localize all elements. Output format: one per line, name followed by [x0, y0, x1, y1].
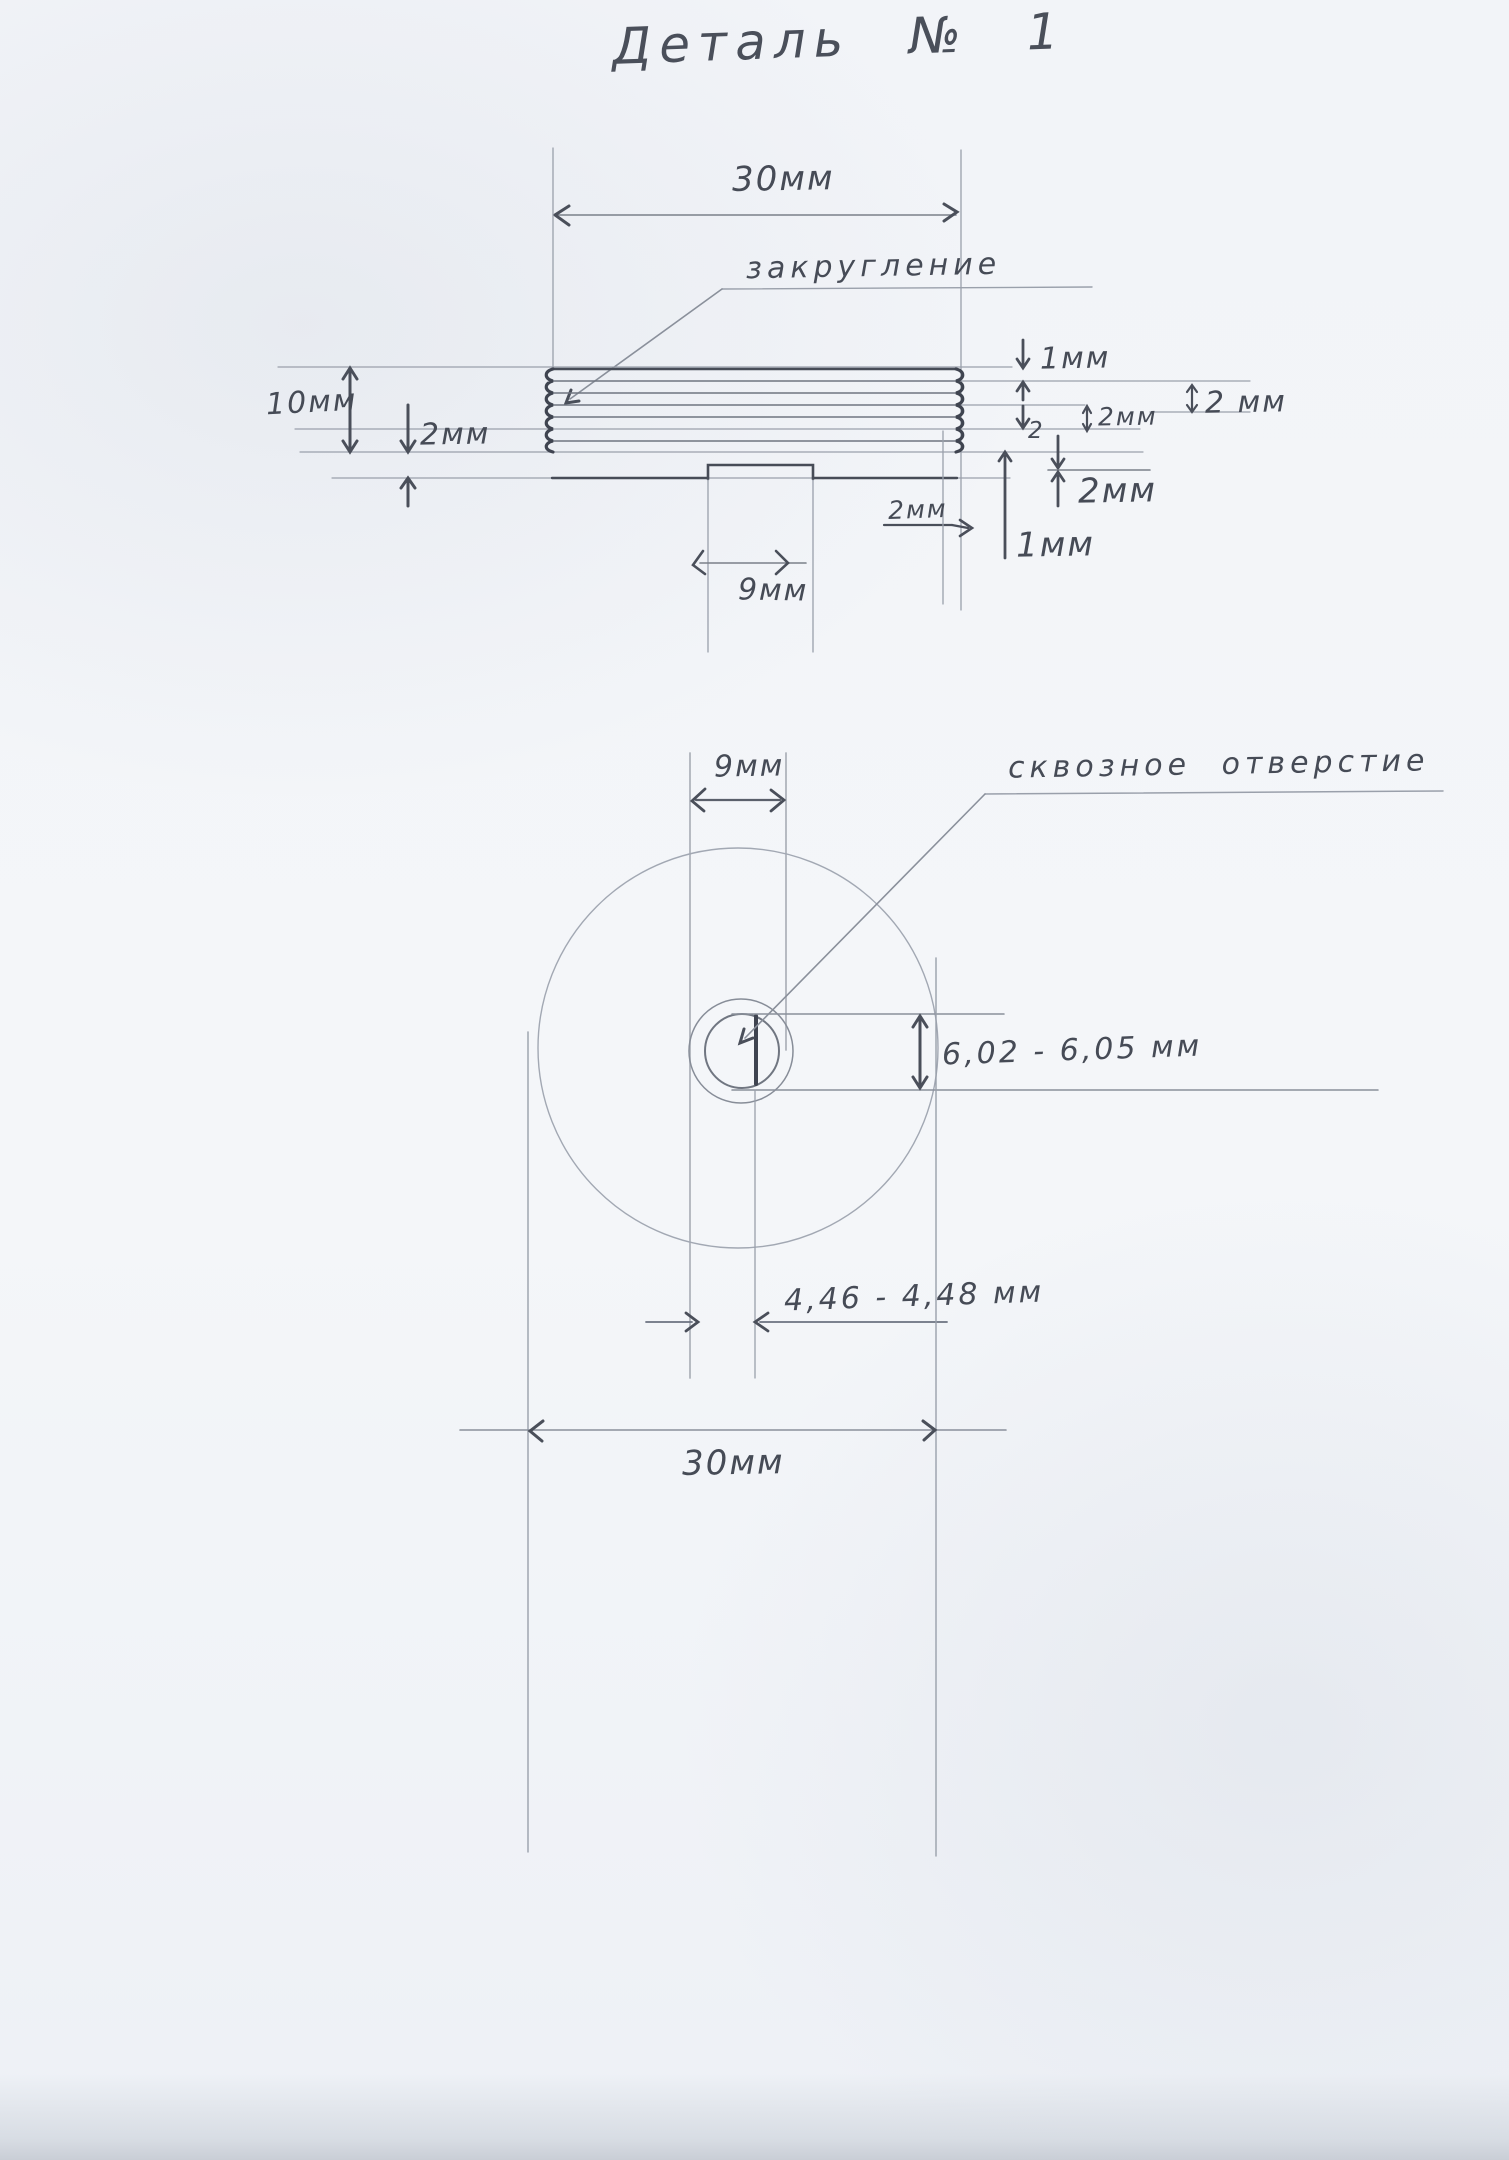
- slot-width-dimension-label: 9мм: [738, 575, 809, 606]
- slot-width-dimension-arrow: [693, 551, 806, 574]
- thread-profile-right: [956, 369, 963, 452]
- through-hole-circle: [705, 1014, 779, 1088]
- slot-to-hole-dimension-label: 4,46 - 4,48 мм: [784, 1277, 1045, 1316]
- side-extension-lines: [553, 148, 961, 610]
- rim-dimension-label: 2мм: [888, 496, 948, 523]
- scanned-drawing-page: Деталь № 1 30мм закругление 10мм 2мм 1мм…: [0, 0, 1509, 2160]
- slot-notch: [708, 465, 813, 479]
- plan-width-dimension-label: 30мм: [682, 1445, 785, 1481]
- plan-slot-edges: [690, 753, 786, 1378]
- hole-height-dimension-label: 6,02 - 6,05 мм: [942, 1031, 1203, 1070]
- right-stack-mid-2mm-label: 2мм: [1098, 403, 1158, 429]
- through-hole-leader: [740, 791, 1443, 1043]
- threaded-body-outline: [546, 369, 963, 478]
- fillet-label: закругление: [746, 250, 1002, 284]
- fillet-leader-line: [566, 287, 1092, 403]
- thread-lines: [553, 381, 956, 441]
- right-stack-digit-label: 2: [1028, 420, 1045, 443]
- plan-slot-dimension-arrow: [692, 789, 784, 811]
- page-title: Деталь № 1: [611, 6, 1067, 72]
- right-stack-far-2mm-label: 2 мм: [1205, 387, 1287, 418]
- side-width-dimension-line: [555, 204, 957, 225]
- left-step-dimension-arrow: [401, 405, 415, 506]
- slot-construction-verticals: [708, 480, 813, 652]
- outer-diameter-circle: [538, 848, 938, 1248]
- counterbore-circle: [689, 999, 793, 1103]
- side-width-dimension-label: 30мм: [732, 161, 835, 197]
- right-stack-lower-2mm-label: 2мм: [1078, 473, 1158, 508]
- through-hole-label: сквозное отверстие: [1008, 746, 1430, 783]
- right-stack-top-1mm-label: 1мм: [1040, 343, 1111, 374]
- plan-slot-dimension-label: 9мм: [714, 751, 785, 782]
- hole-height-dimension-arrow: [913, 1016, 927, 1088]
- left-step-dimension-label: 2мм: [420, 419, 491, 450]
- drawing-linework: [0, 0, 1509, 2160]
- plan-width-dimension: [460, 958, 1006, 1856]
- thread-profile-left: [546, 369, 553, 452]
- height-dimension-label: 10мм: [265, 386, 358, 421]
- right-stack-bottom-1mm-label: 1мм: [1016, 527, 1096, 562]
